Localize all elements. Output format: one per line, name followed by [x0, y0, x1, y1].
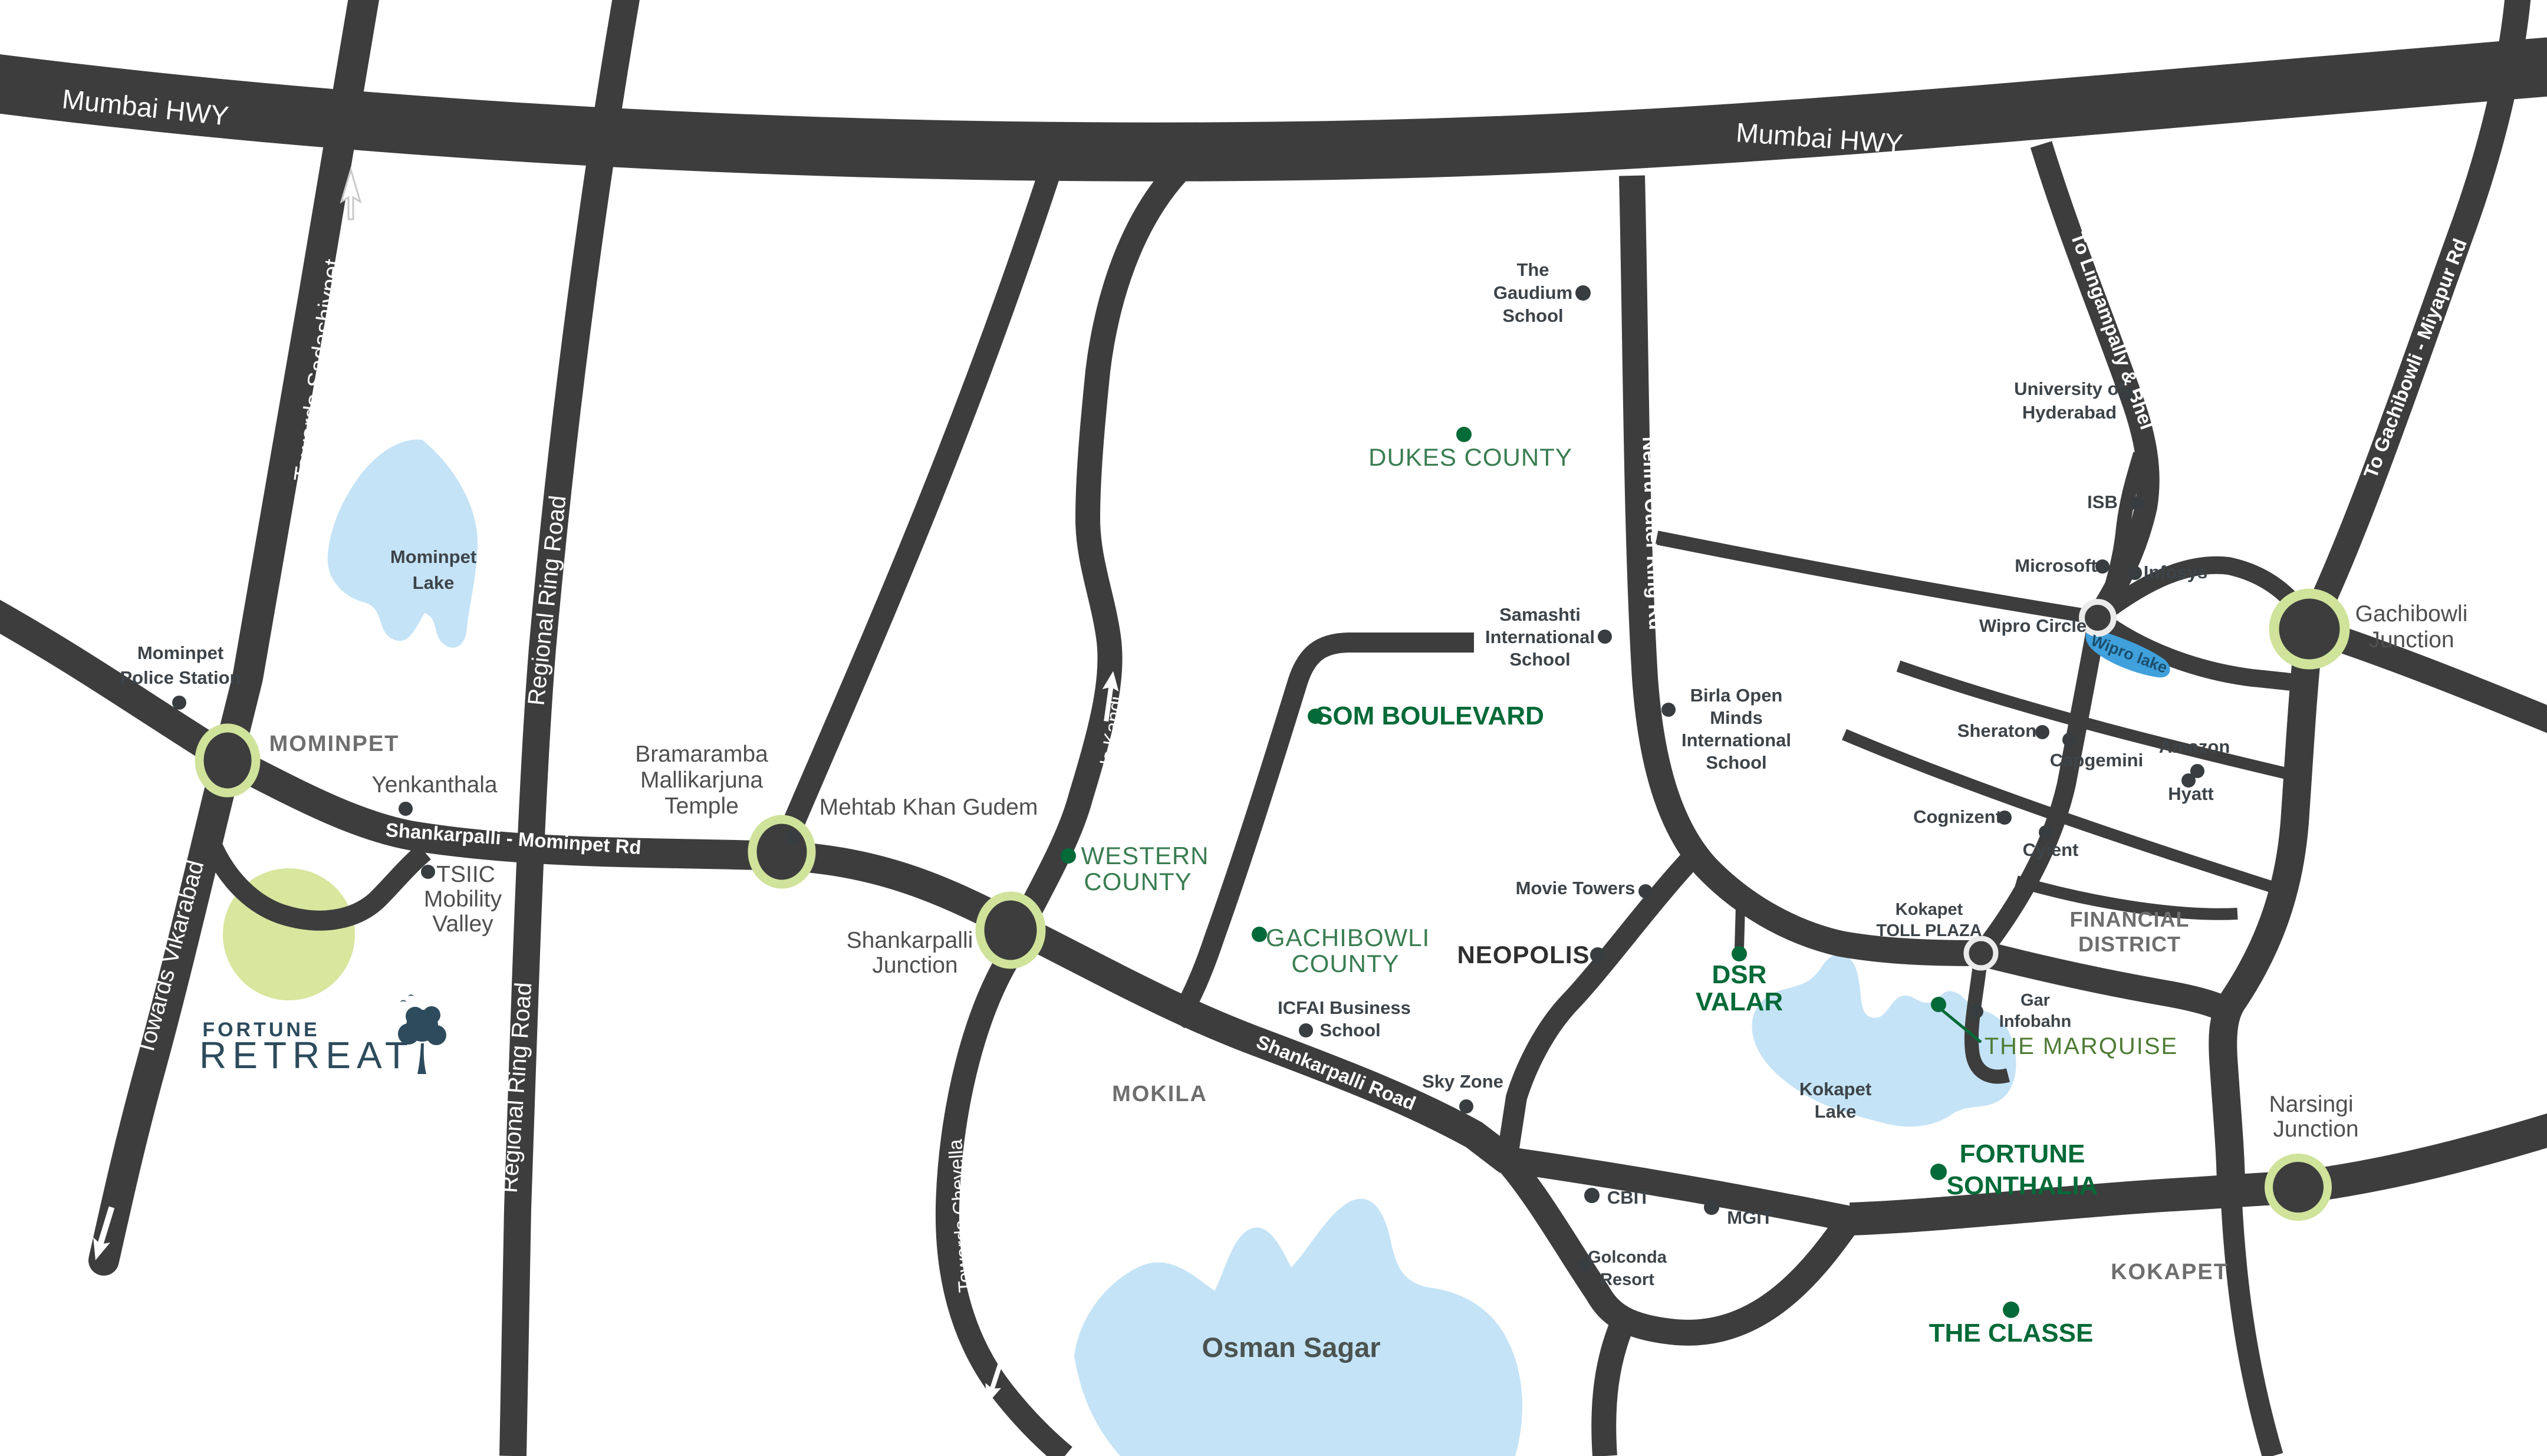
label-gachibowli-junction: Gachibowli	[2355, 601, 2468, 627]
label-movie-towers: Movie Towers	[1516, 878, 1636, 898]
label-yenkanthala: Yenkanthala	[371, 772, 498, 798]
label-regional-ring-road-1: Regional Ring Road	[523, 494, 571, 707]
narsingi-junction-circle	[2269, 1158, 2328, 1217]
svg-text:School: School	[1706, 752, 1766, 773]
label-birla-school: Birla Open	[1690, 685, 1783, 706]
label-gachibowli-county: GACHIBOWLI	[1266, 924, 1430, 951]
svg-text:International: International	[1681, 730, 1791, 750]
dot-western-county	[1061, 848, 1076, 864]
dot-icfai	[1299, 1023, 1313, 1037]
road-mumbai-hwy	[0, 66, 2547, 152]
label-fortune-sonthalia: FORTUNE	[1960, 1139, 2085, 1168]
dot-dsr-valar	[1732, 946, 1747, 961]
label-amazon: Amazon	[2159, 736, 2230, 757]
svg-text:VALAR: VALAR	[1696, 987, 1783, 1016]
label-shankarpalli-junction: Shankarpalli	[847, 928, 973, 953]
dot-samashti-school	[1598, 630, 1612, 644]
mominpet-lake-shape	[328, 440, 478, 648]
label-to-gachibowli-miyapur: To Gachibowli - Miyapur Rd	[2360, 236, 2471, 482]
label-mominpet-police: Mominpet	[137, 643, 223, 663]
svg-text:Junction: Junction	[872, 953, 957, 978]
label-the-classe: THE CLASSE	[1929, 1319, 2094, 1348]
svg-text:Mallikarjuna: Mallikarjuna	[640, 767, 763, 793]
label-shankarpalli-road: Shankarpalli Road	[1253, 1030, 1419, 1114]
gachibowli-junction-circle	[2274, 594, 2345, 664]
label-mokila: MOKILA	[1112, 1082, 1207, 1106]
mehtab-junction-circle	[752, 819, 811, 884]
svg-text:TOLL PLAZA: TOLL PLAZA	[1876, 921, 1982, 940]
label-isb: ISB	[2087, 492, 2118, 512]
svg-text:Lake: Lake	[1815, 1101, 1857, 1122]
svg-text:Junction: Junction	[2368, 627, 2454, 653]
dot-yenkanthala	[399, 802, 413, 816]
svg-text:International: International	[1485, 627, 1595, 647]
svg-text:School: School	[1502, 305, 1563, 326]
dot-cbit	[1584, 1188, 1600, 1203]
road-orr-to-wipro	[1657, 538, 2098, 618]
dot-movie-towers	[1638, 884, 1653, 898]
dot-birla-school	[1661, 703, 1676, 717]
svg-text:Minds: Minds	[1710, 707, 1763, 728]
svg-text:School: School	[1509, 649, 1570, 670]
osman-sagar-lake-shape	[1074, 1199, 1522, 1456]
label-kokapet-lake: Kokapet	[1799, 1079, 1871, 1099]
label-mominpet-lake: Mominpet	[390, 546, 476, 567]
svg-text:Junction: Junction	[2273, 1116, 2358, 1142]
label-gar-infobahn: Gar	[2021, 991, 2050, 1010]
dot-gar-infobahn	[1969, 1004, 1983, 1019]
dot-tsiic	[421, 865, 435, 879]
dot-gaudium-school	[1575, 285, 1591, 301]
dot-isb	[2130, 496, 2144, 510]
road-hwy-to-mehtab	[779, 177, 1048, 856]
svg-text:Gaudium: Gaudium	[1493, 282, 1572, 303]
svg-text:Resort: Resort	[1600, 1270, 1654, 1289]
label-dukes-county: DUKES COUNTY	[1368, 443, 1572, 471]
label-wipro-circle: Wipro Circle	[1979, 615, 2087, 636]
svg-text:Temple: Temple	[664, 793, 739, 819]
label-university-of-hyderabad: University of	[2014, 378, 2125, 399]
svg-text:COUNTY: COUNTY	[1291, 950, 1399, 977]
label-bramaramba-temple: Bramaramba	[635, 742, 768, 767]
svg-text:Infobahn: Infobahn	[1999, 1012, 2071, 1031]
svg-text:DISTRICT: DISTRICT	[2078, 932, 2181, 956]
label-samashti-school: Samashti	[1499, 604, 1581, 625]
label-microsoft: Microsoft	[2015, 555, 2097, 576]
svg-text:Hyderabad: Hyderabad	[2022, 402, 2117, 423]
dot-dukes-county	[1456, 427, 1472, 442]
label-dsr-valar: DSR	[1712, 960, 1767, 989]
svg-text:Police Station: Police Station	[120, 667, 241, 688]
dot-gachibowli-county	[1252, 927, 1267, 942]
label-capgemini: Capgemini	[2050, 750, 2143, 770]
road-regional-ring	[513, 0, 628, 1456]
road-dsr-stub	[1739, 907, 1740, 948]
label-icfai: ICFAI Business	[1278, 997, 1411, 1018]
location-map: Mumbai HWY Mumbai HWY Towards Sadashivpe…	[0, 0, 2547, 1456]
dot-sky-zone	[1459, 1099, 1473, 1114]
dot-som-boulevard	[1308, 709, 1323, 724]
svg-text:SONTHALIA: SONTHALIA	[1947, 1171, 2098, 1200]
dot-fortune-sonthalia	[1930, 1164, 1947, 1180]
label-mgit: MGIT	[1727, 1207, 1773, 1228]
svg-text:Mobility: Mobility	[424, 887, 502, 912]
label-osman-sagar: Osman Sagar	[1202, 1332, 1380, 1363]
label-financial-district: FINANCIAL	[2070, 907, 2190, 931]
dot-university	[2119, 387, 2133, 401]
dot-mominpet-police	[172, 696, 186, 710]
road-south-exit	[1604, 1323, 1623, 1456]
svg-text:School: School	[1319, 1020, 1380, 1040]
dot-microsoft	[2095, 559, 2110, 574]
dot-mgit	[1704, 1200, 1719, 1215]
label-kokapet-area: KOKAPET	[2111, 1260, 2229, 1284]
dot-the-classe	[2003, 1302, 2019, 1318]
brand-line2: RETREAT	[199, 1034, 414, 1076]
mominpet-junction-circle	[199, 728, 256, 793]
label-western-county: WESTERN	[1081, 842, 1209, 869]
dot-bramaramba-temple	[786, 830, 800, 844]
dot-golconda-resort	[1577, 1258, 1591, 1272]
label-golconda-resort: Golconda	[1588, 1248, 1667, 1267]
road-neopolis-branch	[1507, 858, 1692, 1159]
dot-infosys	[2128, 566, 2142, 580]
svg-text:Lake: Lake	[413, 572, 455, 593]
dot-sheraton	[2035, 725, 2049, 739]
dot-neopolis	[1590, 947, 1605, 963]
road-towards-kandi	[1020, 140, 1215, 929]
label-narsingi-junction: Narsingi	[2269, 1092, 2353, 1117]
label-cbit: CBIT	[1607, 1187, 1650, 1208]
label-cyient: Cyient	[2023, 839, 2079, 860]
dot-capgemini	[2062, 733, 2077, 747]
dot-the-marquise	[1931, 997, 1946, 1012]
fortune-retreat-logo: FORTUNE RETREAT	[199, 994, 446, 1076]
label-mominpet-town: MOMINPET	[269, 732, 400, 756]
label-mehtab-khan-gudem: Mehtab Khan Gudem	[820, 795, 1038, 820]
dot-cyient	[2039, 825, 2053, 839]
label-infosys: Infosys	[2144, 562, 2208, 582]
label-tsiic: TSIIC	[436, 862, 495, 887]
label-som-boulevard: SOM BOULEVARD	[1315, 701, 1544, 730]
label-cognizent: Cognizent	[1913, 806, 2002, 827]
shankarpalli-junction-circle	[980, 896, 1041, 964]
label-sheraton: Sheraton	[1957, 720, 2036, 741]
label-neopolis: NEOPOLIS	[1457, 941, 1590, 969]
label-the-marquise: THE MARQUISE	[1985, 1033, 2178, 1059]
kokapet-toll-circle	[1966, 938, 1996, 968]
svg-text:Valley: Valley	[432, 911, 493, 937]
label-sky-zone: Sky Zone	[1422, 1071, 1503, 1092]
svg-text:COUNTY: COUNTY	[1084, 868, 1192, 895]
dot-cognizent	[1998, 811, 2012, 825]
label-gaudium-school: The	[1516, 259, 1549, 280]
dot-hyatt	[2181, 773, 2196, 788]
label-kokapet-toll: Kokapet	[1896, 900, 1963, 919]
